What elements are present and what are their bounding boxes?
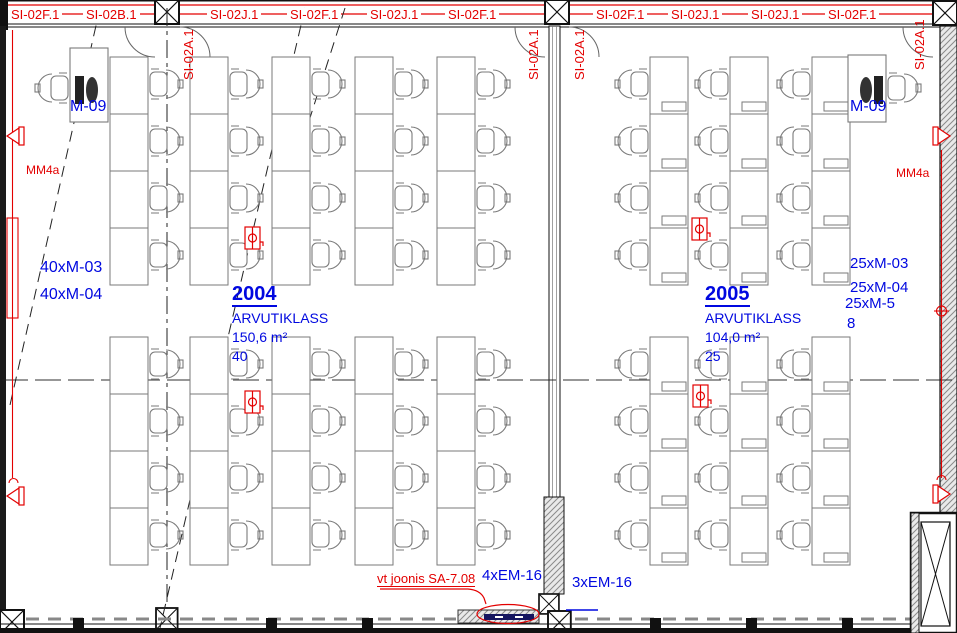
floor-plan-drawing (0, 0, 957, 633)
si-label-top-8: SI-02J.1 (668, 8, 722, 21)
si-label-top-4: SI-02F.1 (287, 8, 341, 21)
bottom-wall (0, 610, 957, 633)
room-area-2004: 150,6 m² (232, 330, 287, 344)
room-seats-2005: 25 (705, 349, 721, 363)
equipment-count-2004-1: 40xM-03 (40, 260, 102, 276)
si-label-vert-1: SI-02A.1 (182, 29, 195, 80)
si-label-top-10: SI-02F.1 (825, 8, 879, 21)
si-label-top-7: SI-02F.1 (593, 8, 647, 21)
room-area-2005: 104,0 m² (705, 330, 760, 344)
si-label-vert-4: SI-02A.1 (913, 19, 926, 70)
teacher-station-label-2005: M-09 (850, 99, 886, 115)
si-label-top-2: SI-02B.1 (83, 8, 140, 21)
wall-label-mm4a-right: MM4a (896, 167, 929, 179)
si-label-top-9: SI-02J.1 (748, 8, 802, 21)
shaft (911, 513, 957, 633)
si-label-top-5: SI-02J.1 (367, 8, 421, 21)
room-number-2005: 2005 (705, 284, 750, 307)
room-name-2005: ARVUTIKLASS (705, 311, 801, 325)
floor-plan-canvas: SI-02F.1 SI-02B.1 SI-02J.1 SI-02F.1 SI-0… (0, 0, 957, 633)
equipment-count-2005-1: 25xM-03 (850, 256, 908, 271)
si-label-vert-3: SI-02A.1 (573, 29, 586, 80)
equipment-count-2005-4: 8 (847, 316, 855, 331)
teacher-station-label-2004: M-09 (70, 99, 106, 115)
em16-label-left: 4xEM-16 (482, 568, 542, 583)
room-name-2004: ARVUTIKLASS (232, 311, 328, 325)
wall-label-mm4a-left: MM4a (26, 164, 59, 176)
room-seats-2004: 40 (232, 349, 248, 363)
reference-note-label: vt joonis SA-7.08 (377, 572, 475, 587)
room-number-2004: 2004 (232, 284, 277, 307)
si-label-top-6: SI-02F.1 (445, 8, 499, 21)
equipment-count-2005-3: 25xM-5 (845, 296, 895, 311)
equipment-count-2005-2: 25xM-04 (850, 280, 908, 295)
si-label-top-3: SI-02J.1 (207, 8, 261, 21)
si-label-top-1: SI-02F.1 (8, 8, 62, 21)
equipment-count-2004-2: 40xM-04 (40, 287, 102, 303)
em16-label-right: 3xEM-16 (572, 575, 632, 590)
si-label-vert-2: SI-02A.1 (527, 29, 540, 80)
